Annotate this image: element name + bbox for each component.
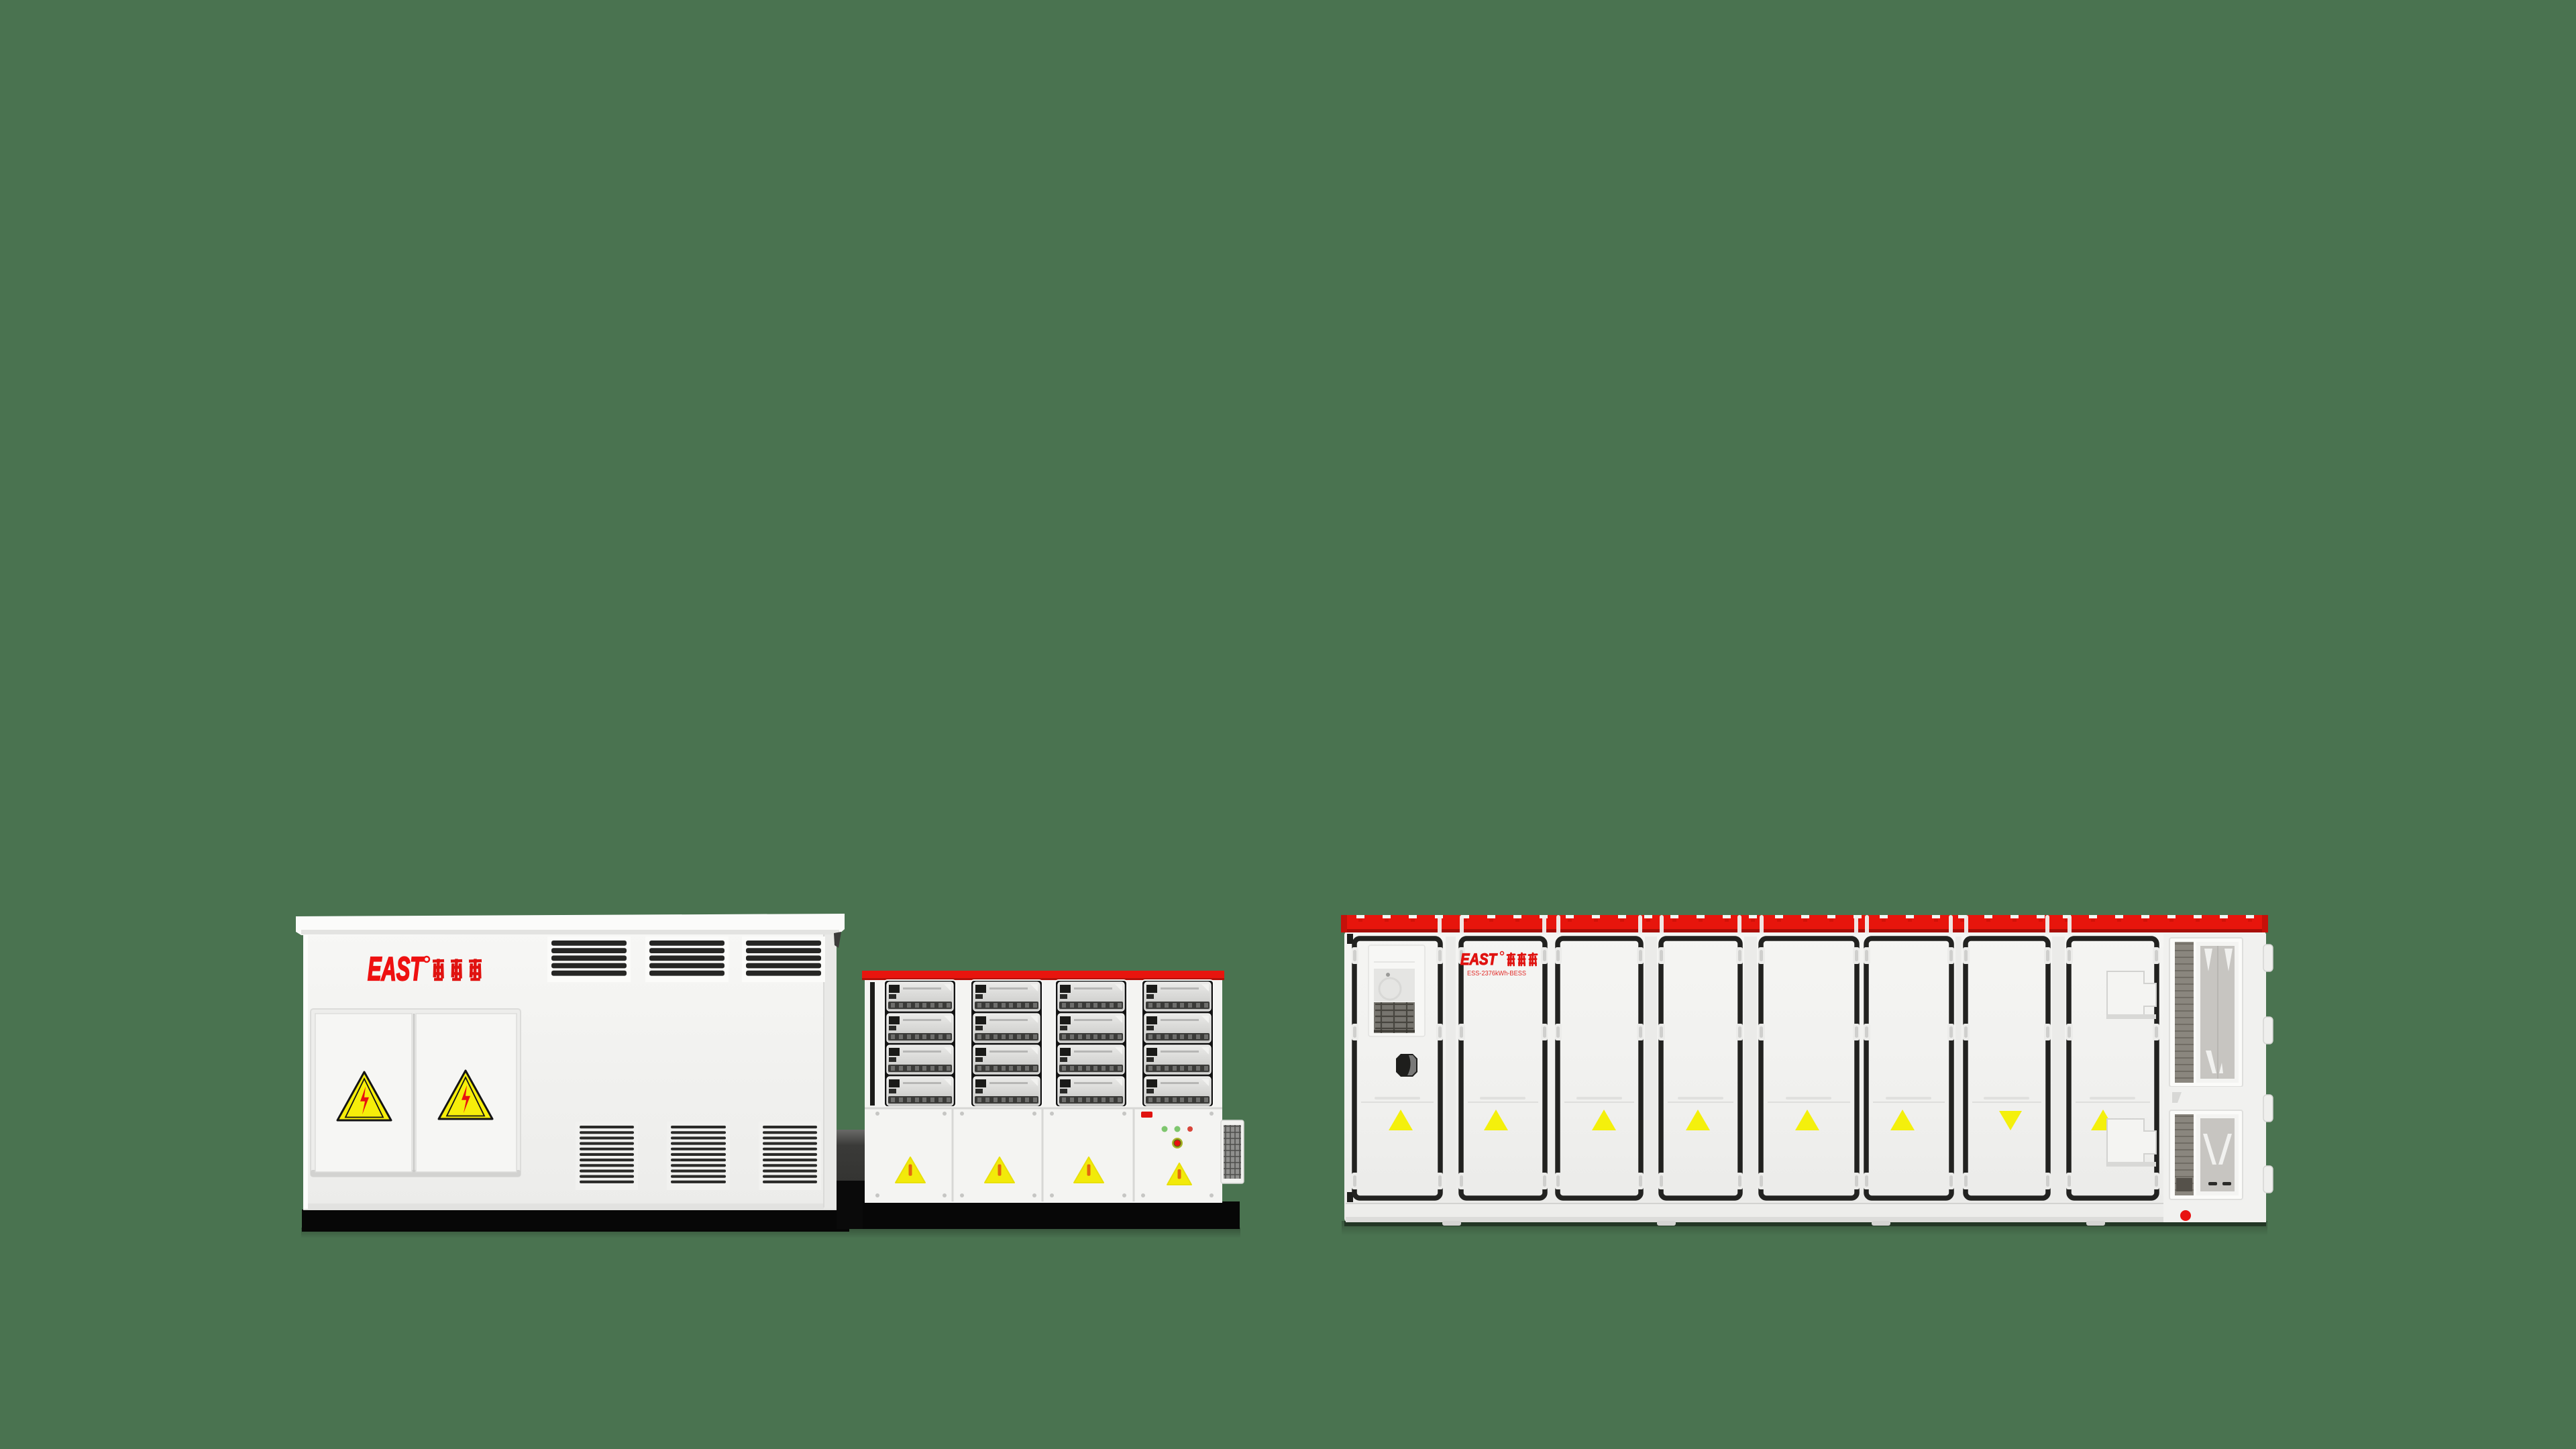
svg-text:ESS-2376kWh-BESS: ESS-2376kWh-BESS: [1467, 970, 1526, 977]
svg-text:EAST: EAST: [368, 951, 425, 987]
svg-text:EAST: EAST: [1460, 951, 1498, 969]
